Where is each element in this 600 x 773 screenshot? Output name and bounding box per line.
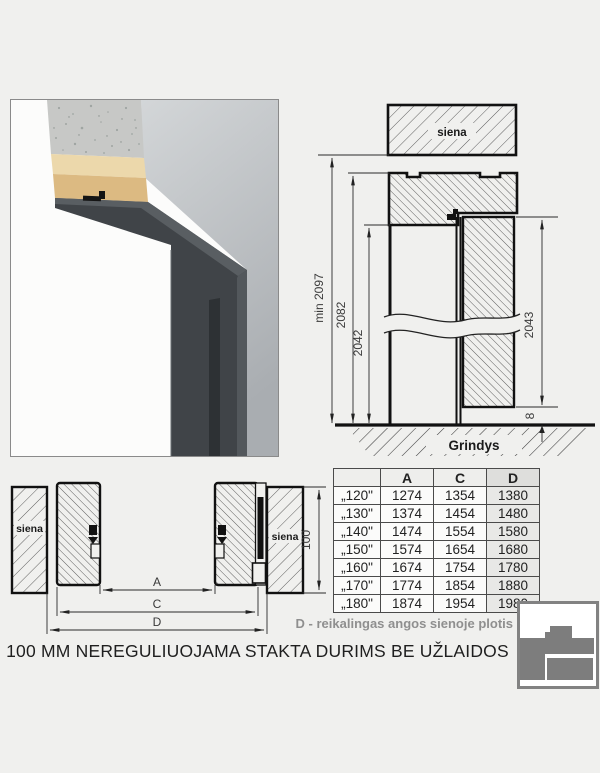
product-caption: 100 MM NEREGULIUOJAMA STAKTA DURIMS BE U… xyxy=(5,641,510,662)
a-cell: 1374 xyxy=(381,505,434,523)
c-cell: 1454 xyxy=(434,505,487,523)
size-cell: „170" xyxy=(334,577,381,595)
wall-label: siena xyxy=(437,127,467,139)
d-cell: 1780 xyxy=(487,559,540,577)
dim-depth-label: 100 xyxy=(299,530,313,550)
size-cell: „140" xyxy=(334,523,381,541)
vertical-section-drawing: siena Grindys xyxy=(310,95,600,467)
table-row: „120" 1274 1354 1380 xyxy=(334,487,540,505)
jamb-left xyxy=(57,483,100,585)
c-cell: 1954 xyxy=(434,595,487,613)
frame-photo xyxy=(10,99,279,457)
manufacturer-logo xyxy=(517,601,599,689)
wall-left: siena xyxy=(12,487,47,593)
a-cell: 1574 xyxy=(381,541,434,559)
wall-right-label: siena xyxy=(272,531,299,543)
size-cell: „120" xyxy=(334,487,381,505)
a-cell: 1674 xyxy=(381,559,434,577)
dim-leaf-height: 2043 xyxy=(522,311,536,338)
c-cell: 1354 xyxy=(434,487,487,505)
table-row: „140" 1474 1554 1580 xyxy=(334,523,540,541)
size-cell: „180" xyxy=(334,595,381,613)
table-row: „130" 1374 1454 1480 xyxy=(334,505,540,523)
a-cell: 1474 xyxy=(381,523,434,541)
floor-label: Grindys xyxy=(448,438,499,453)
table-header-row: A C D xyxy=(334,469,540,487)
d-cell: 1880 xyxy=(487,577,540,595)
wall-block: siena xyxy=(388,105,516,155)
d-cell: 1680 xyxy=(487,541,540,559)
door-leaf-section xyxy=(463,217,514,407)
size-cell: „130" xyxy=(334,505,381,523)
wall-right: siena xyxy=(267,487,303,593)
dim-a-label: A xyxy=(153,575,161,589)
size-cell: „160" xyxy=(334,559,381,577)
dimensions-table: A C D „120" 1274 1354 1380 „130" 1374 14… xyxy=(333,468,540,613)
table-header-d: D xyxy=(487,469,540,487)
frame-photo-render xyxy=(11,100,278,456)
break-wave xyxy=(384,314,520,338)
seal-detail xyxy=(83,196,101,202)
plaster-layer-light xyxy=(51,154,146,178)
d-cell: 1380 xyxy=(487,487,540,505)
a-cell: 1274 xyxy=(381,487,434,505)
a-cell: 1774 xyxy=(381,577,434,595)
table-row: „160" 1674 1754 1780 xyxy=(334,559,540,577)
c-cell: 1854 xyxy=(434,577,487,595)
d-cell: 1580 xyxy=(487,523,540,541)
table-row: „180" 1874 1954 1980 xyxy=(334,595,540,613)
table-header-empty xyxy=(334,469,381,487)
dim-opening-height: 2042 xyxy=(351,329,365,356)
table-header-a: A xyxy=(381,469,434,487)
dim-d-label: D xyxy=(153,615,162,629)
wall-section xyxy=(47,100,148,202)
table-header-c: C xyxy=(434,469,487,487)
size-cell: „150" xyxy=(334,541,381,559)
page: siena Grindys xyxy=(0,0,600,773)
floor: Grindys xyxy=(335,425,595,456)
table-row: „170" 1774 1854 1880 xyxy=(334,577,540,595)
d-definition-note: D - reikalingas angos sienoje plotis xyxy=(280,616,513,631)
c-cell: 1654 xyxy=(434,541,487,559)
d-cell: 1480 xyxy=(487,505,540,523)
dim-c-label: C xyxy=(153,597,162,611)
jamb-right xyxy=(215,483,258,585)
dim-frame-height: 2082 xyxy=(334,301,348,328)
table-row: „150" 1574 1654 1680 xyxy=(334,541,540,559)
c-cell: 1754 xyxy=(434,559,487,577)
dim-min-height: min 2097 xyxy=(312,273,326,323)
c-cell: 1554 xyxy=(434,523,487,541)
wall-left-label: siena xyxy=(16,523,43,535)
a-cell: 1874 xyxy=(381,595,434,613)
dim-floor-gap: 8 xyxy=(523,412,537,419)
